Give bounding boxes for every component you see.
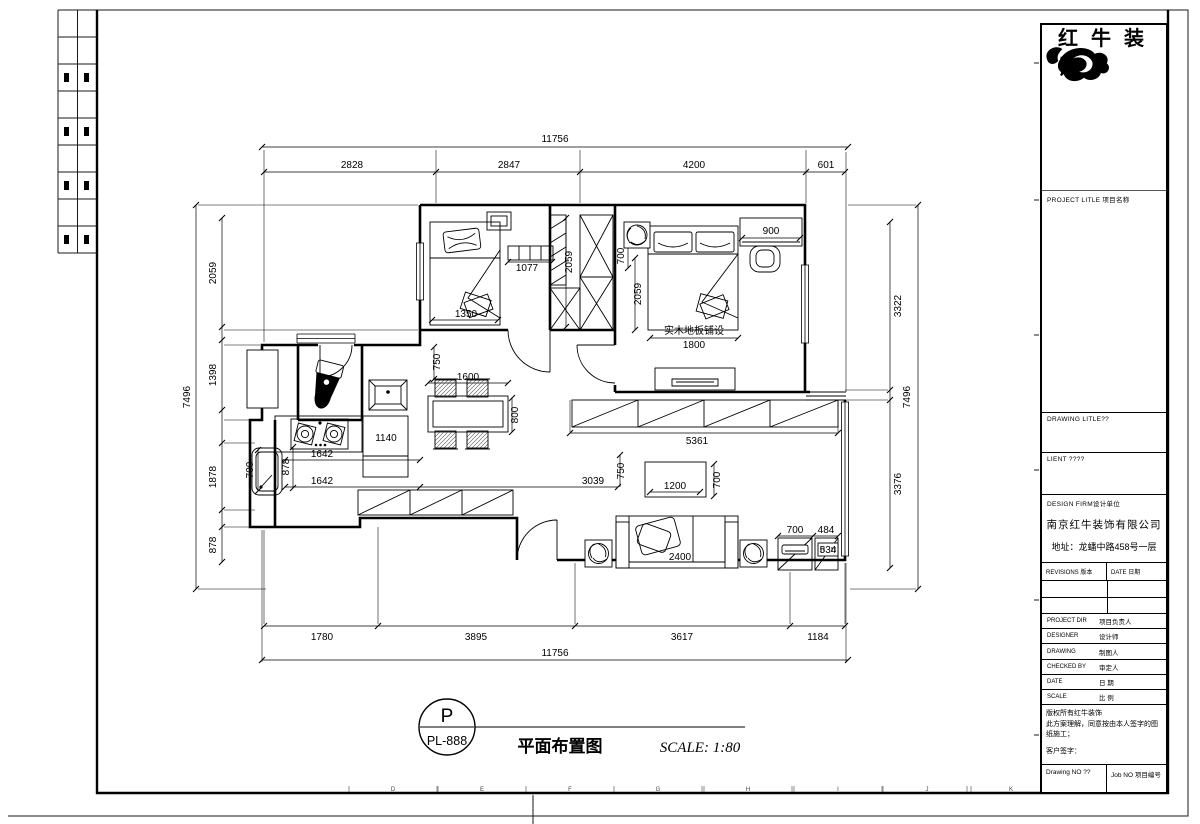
title-block: 红牛装饰 PROJECT LITLE 项目名称 DRAWING LITLE?? …	[1040, 23, 1168, 794]
ruler-letter: J	[926, 787, 929, 793]
kitchen-counter	[275, 416, 362, 452]
dim-text: 2059	[208, 261, 219, 284]
copyright-notes: 版权所有红牛装饰 此方案理解，同意按由本人签字的图纸施工； 客户签字：	[1042, 704, 1166, 764]
credit-row: DESIGNER设计师	[1042, 628, 1166, 643]
credit-row: CHECKED BY审定人	[1042, 659, 1166, 674]
speaker-icon	[585, 540, 612, 567]
dim-text: 1800	[683, 340, 706, 351]
dim-text: 900	[763, 226, 780, 237]
dining-chair	[465, 431, 490, 449]
door-entry	[517, 520, 557, 560]
dim-text: 1140	[375, 433, 397, 444]
windows	[297, 243, 850, 556]
bath-door-gap	[318, 342, 354, 349]
balcony-sink-icon	[252, 448, 282, 495]
drawing-title-label: DRAWING LITLE??	[1042, 413, 1166, 423]
project-title-label: PROJECT LITLE 项目名称	[1042, 191, 1166, 204]
speaker-icon	[740, 540, 767, 567]
label-bubble-code: PL-888	[427, 734, 467, 748]
drawing-no-label: Drawing NO ??	[1042, 765, 1107, 792]
wardrobe-column	[550, 215, 613, 330]
dim-text: 878	[281, 458, 292, 475]
dim-text: 2847	[498, 160, 521, 171]
kitchen-cabinet-row	[358, 490, 513, 515]
signature-strip	[58, 10, 97, 253]
dim-text: 2059	[633, 282, 644, 305]
note-line: 此方案理解，同意按由本人签字的图纸施工；	[1046, 720, 1163, 741]
ruler-ticks	[349, 786, 1055, 792]
dim-text: 700	[245, 461, 256, 478]
hatched-cabinets	[358, 400, 838, 515]
ruler-letter: F	[568, 787, 572, 793]
customer-sign-label: 客户签字：	[1046, 747, 1163, 758]
credit-row: DRAWING制图人	[1042, 643, 1166, 658]
dim-text: 1780	[311, 632, 334, 643]
date-col-label: DATE 日期	[1107, 563, 1140, 580]
plan-title: 平面布置图	[518, 736, 603, 756]
dim-text: 878	[208, 536, 219, 553]
dim-text: 11756	[541, 134, 569, 145]
dim-text: 3376	[893, 472, 904, 495]
dining-chair	[433, 431, 458, 449]
bull-logo-icon	[1042, 39, 1114, 95]
dim-text: 2828	[341, 160, 364, 171]
job-no-label: Job NO 项目编号	[1107, 765, 1161, 792]
dim-text: 1878	[208, 465, 219, 488]
dim-text: 750	[616, 462, 627, 479]
dim-text: 700	[712, 471, 723, 488]
credit-row: PROJECT DIR项目负责人	[1042, 613, 1166, 628]
kitchen-sink-icon	[369, 380, 407, 410]
note-line: 版权所有红牛装饰	[1046, 709, 1163, 720]
dim-text: 800	[510, 406, 521, 423]
window-master	[801, 265, 810, 343]
drawing-sheet: 1175628282847420060117803895361711841175…	[0, 0, 1200, 824]
dim-text: 1642	[311, 476, 334, 487]
sheet-border	[8, 10, 1188, 824]
revisions-table: REVISIONS 版本 DATE 日期	[1042, 562, 1166, 613]
toilet-icon	[307, 360, 344, 412]
dim-text: 3322	[893, 294, 904, 317]
dim-text: 1600	[457, 372, 480, 383]
door-master	[577, 345, 615, 383]
client-label: LIENT ????	[1042, 453, 1166, 463]
dim-text: 534	[820, 545, 837, 556]
dining-set	[428, 379, 508, 449]
dim-text: 3617	[671, 632, 694, 643]
hall-closet-row	[572, 400, 838, 427]
dim-text: 1200	[664, 481, 687, 492]
floor-plan-canvas: 1175628282847420060117803895361711841175…	[0, 0, 1200, 824]
dim-text: 484	[818, 525, 835, 536]
fridge-box	[247, 350, 278, 408]
dim-text: 1184	[807, 632, 829, 643]
kitchen-island	[363, 416, 408, 477]
dim-text: 5361	[686, 436, 709, 447]
dim-text: 实木地板铺设	[664, 324, 724, 337]
credit-row: DATE日 期	[1042, 674, 1166, 689]
label-bubble-letter: P	[441, 706, 454, 727]
door-bedroom1	[508, 330, 550, 372]
dim-text: 2400	[669, 552, 692, 563]
stove-icon	[291, 419, 348, 449]
dining-chair	[433, 379, 458, 397]
dim-text: 700	[616, 247, 627, 264]
bedroom1-shelf	[508, 246, 553, 260]
dim-text: 7496	[182, 385, 193, 408]
dim-text: 1642	[311, 449, 334, 460]
firm-name: 南京红牛装饰有限公司	[1042, 517, 1166, 532]
firm-address: 地址：龙蟠中路458号一层	[1042, 540, 1166, 553]
dimension-texts: 1175628282847420060117803895361711841175…	[182, 134, 913, 659]
ruler-letter: G	[656, 787, 661, 793]
ruler-letter: E	[480, 787, 484, 793]
ruler-letter: D	[391, 787, 396, 793]
credit-row: SCALE比 例	[1042, 689, 1166, 704]
drawing-label: P PL-888 平面布置图 SCALE: 1:80	[419, 699, 745, 756]
dim-text: 1350	[455, 309, 478, 320]
window-living-bay	[841, 402, 850, 556]
dimension-lines	[193, 144, 921, 663]
master-tv-cabinet	[655, 368, 735, 390]
dim-text: 750	[432, 353, 443, 370]
dim-text: 1398	[208, 363, 219, 386]
ruler-letter: H	[746, 787, 750, 793]
master-bed	[648, 226, 738, 330]
dim-text: 4200	[683, 160, 706, 171]
ceiling-fan-icon	[624, 222, 650, 248]
window-bedroom1	[416, 243, 425, 300]
dim-text: 3895	[465, 632, 488, 643]
walls	[250, 205, 846, 560]
dim-text: 3039	[582, 476, 605, 487]
design-firm-label: DESIGN FIRM设计单位	[1042, 495, 1166, 508]
dim-text: 11756	[541, 648, 569, 659]
brand-logo: 红牛装饰	[1042, 25, 1166, 191]
dim-text: 700	[787, 525, 804, 536]
dim-text: 1077	[516, 263, 539, 274]
ruler-letter: K	[1009, 787, 1013, 793]
dim-text: 2059	[564, 250, 575, 273]
strip-label-marks	[64, 73, 89, 244]
bedroom1-nightstand	[487, 212, 511, 230]
dim-text: 7496	[902, 385, 913, 408]
plan-scale: SCALE: 1:80	[660, 740, 741, 756]
dim-text: 601	[818, 160, 835, 171]
revisions-label: REVISIONS 版本	[1042, 563, 1107, 580]
credits-rows: PROJECT DIR项目负责人 DESIGNER设计师 DRAWING制图人 …	[1042, 613, 1166, 705]
drawing-number-row: Drawing NO ?? Job NO 项目编号	[1042, 764, 1166, 792]
